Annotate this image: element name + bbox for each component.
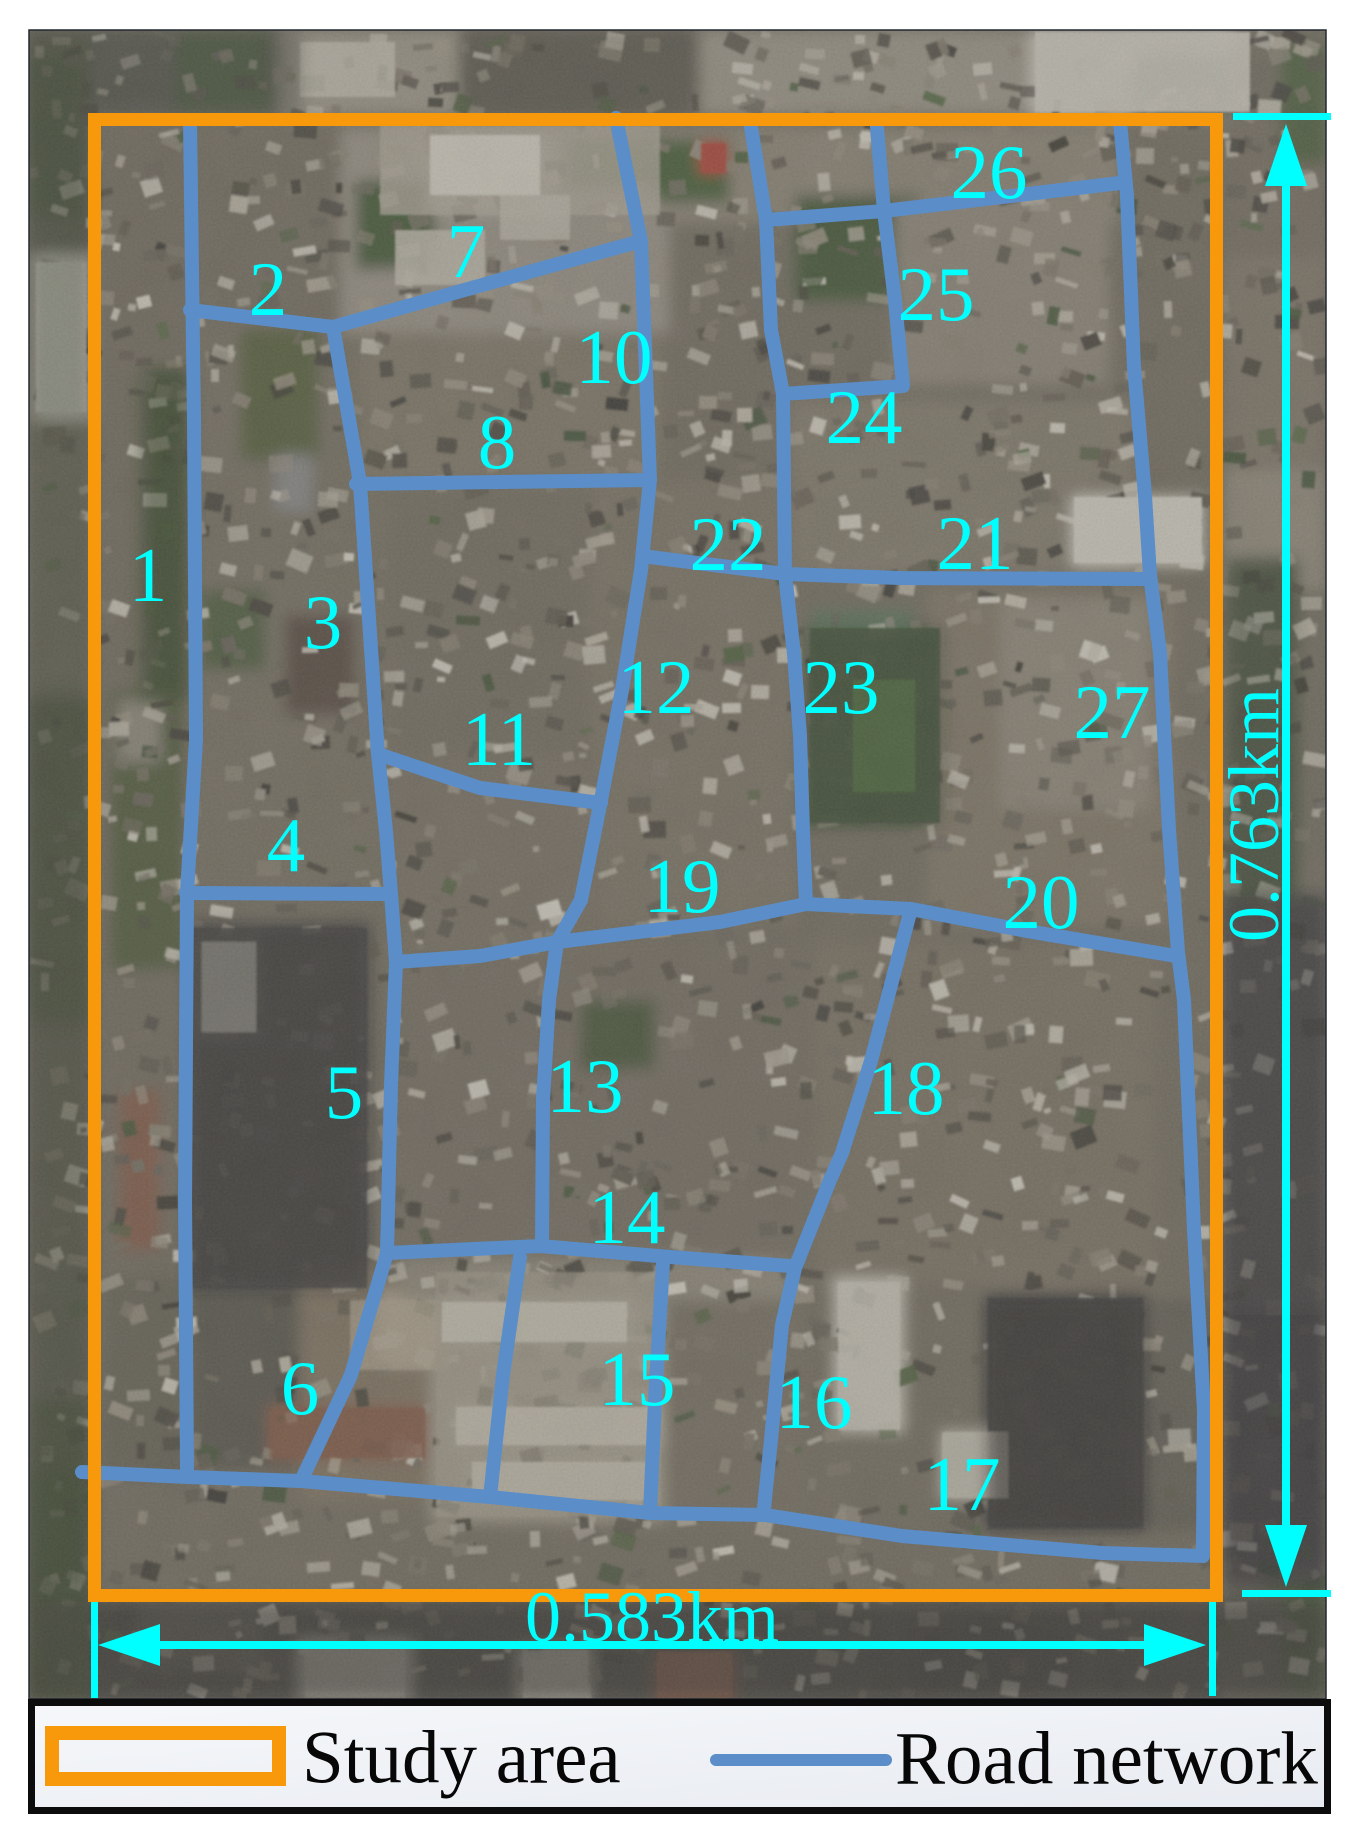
svg-text:10: 10 bbox=[576, 314, 653, 400]
svg-text:17: 17 bbox=[924, 1441, 1001, 1527]
svg-text:Road network: Road network bbox=[895, 1718, 1318, 1801]
svg-text:16: 16 bbox=[776, 1359, 853, 1445]
svg-text:5: 5 bbox=[325, 1049, 364, 1135]
svg-text:19: 19 bbox=[644, 843, 721, 929]
svg-text:26: 26 bbox=[951, 129, 1028, 215]
svg-text:Study area: Study area bbox=[302, 1717, 621, 1800]
svg-text:21: 21 bbox=[937, 500, 1014, 586]
svg-text:6: 6 bbox=[281, 1345, 320, 1431]
svg-text:15: 15 bbox=[599, 1336, 676, 1422]
svg-text:4: 4 bbox=[267, 802, 306, 888]
svg-text:12: 12 bbox=[618, 644, 695, 730]
svg-text:22: 22 bbox=[690, 501, 767, 587]
svg-text:3: 3 bbox=[304, 579, 343, 665]
svg-text:1: 1 bbox=[129, 532, 168, 618]
svg-text:23: 23 bbox=[803, 644, 880, 730]
svg-text:13: 13 bbox=[547, 1043, 624, 1129]
svg-text:0.763km: 0.763km bbox=[1214, 688, 1294, 942]
svg-text:18: 18 bbox=[868, 1045, 945, 1131]
svg-text:14: 14 bbox=[589, 1174, 666, 1260]
svg-text:25: 25 bbox=[898, 251, 975, 337]
svg-text:2: 2 bbox=[249, 246, 288, 332]
svg-text:24: 24 bbox=[826, 374, 903, 460]
svg-text:11: 11 bbox=[462, 696, 536, 782]
svg-text:27: 27 bbox=[1074, 669, 1151, 755]
svg-text:0.583km: 0.583km bbox=[525, 1577, 779, 1657]
svg-text:20: 20 bbox=[1003, 859, 1080, 945]
svg-text:8: 8 bbox=[478, 399, 517, 485]
svg-text:7: 7 bbox=[447, 208, 486, 294]
